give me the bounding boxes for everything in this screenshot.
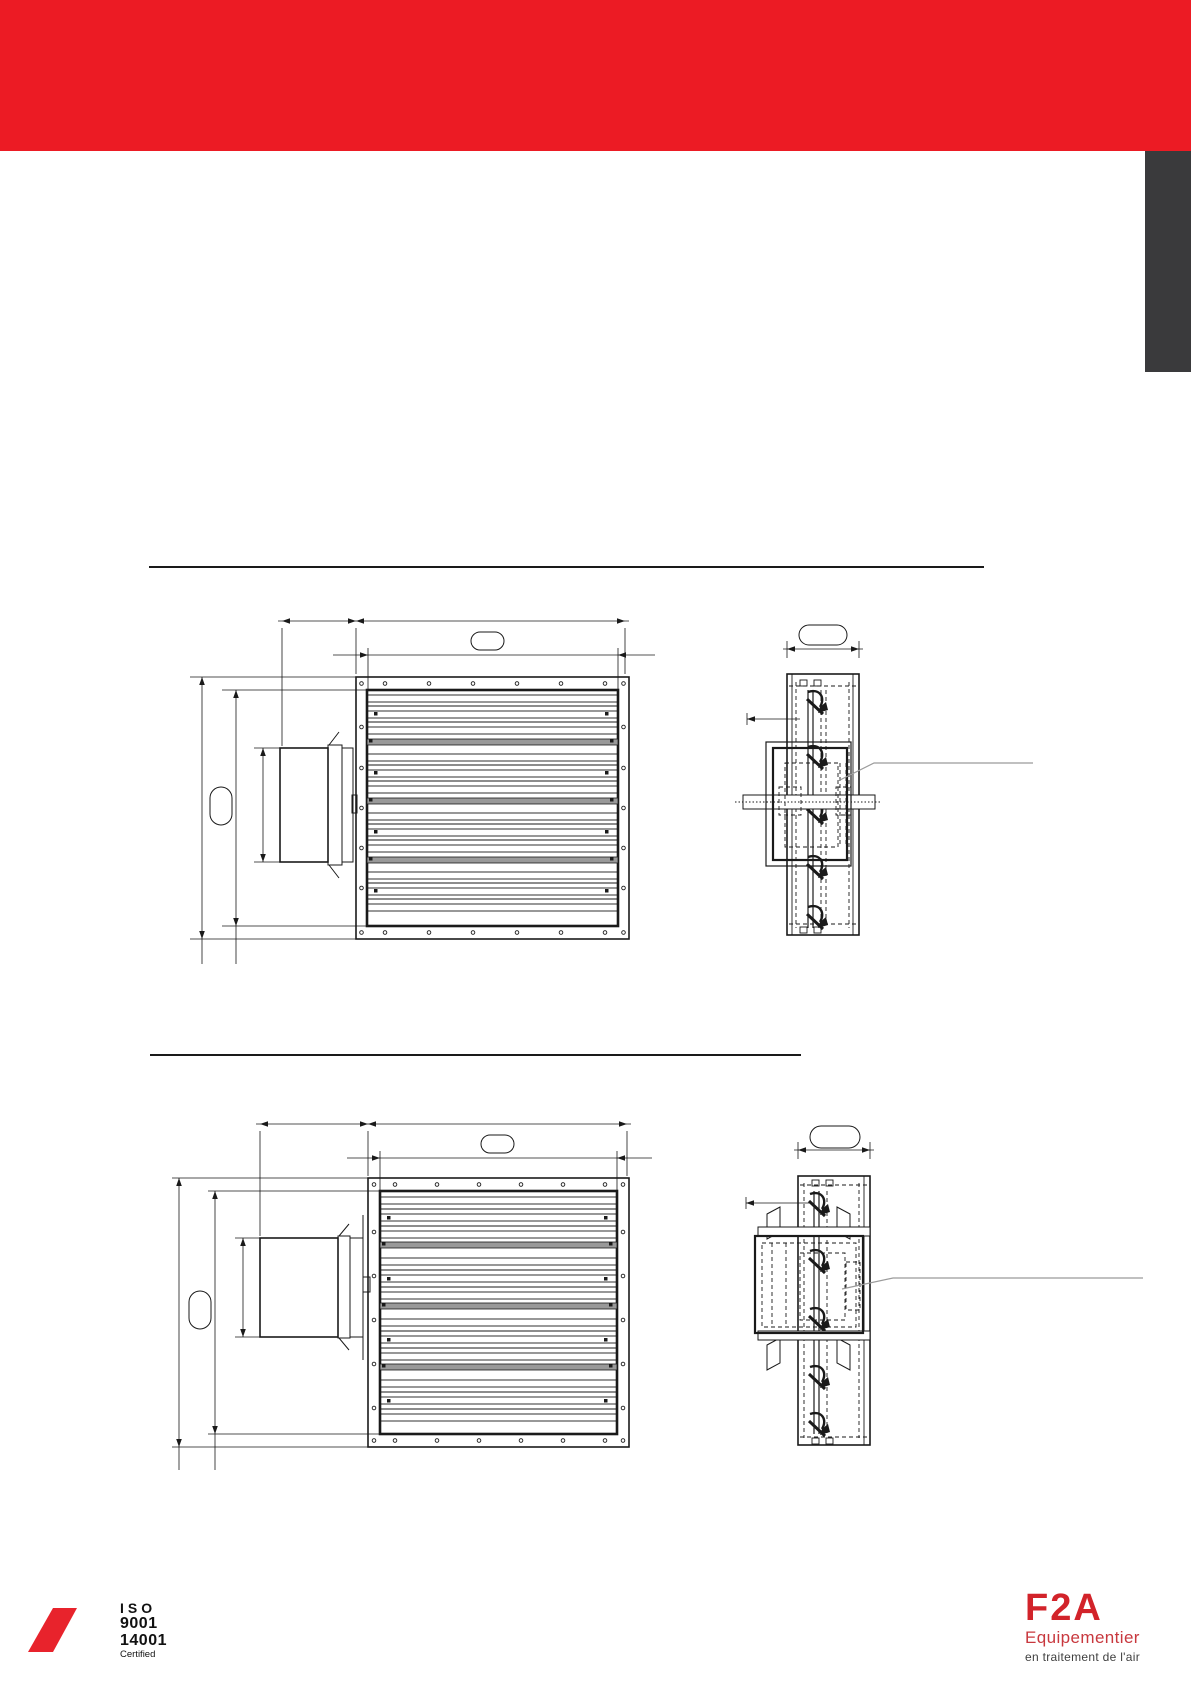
handle-slot	[189, 1291, 211, 1329]
handle-slot	[481, 1135, 514, 1153]
drawing-2	[172, 1121, 1143, 1470]
drawing-2-front-view	[368, 1178, 629, 1447]
drawing-1-front-view	[356, 677, 629, 939]
leader-line	[838, 763, 1033, 781]
handle-slot	[471, 632, 504, 650]
handle-slot	[799, 625, 847, 645]
drawing-1-side-view	[735, 625, 1033, 935]
drawing-1-actuator	[280, 732, 357, 878]
f2a-logo-text: F2A	[1025, 1590, 1140, 1626]
drawing-1-dimensions	[190, 618, 655, 964]
iso-certified-label: Certified	[120, 1650, 167, 1660]
iso-org: ISO	[120, 1601, 167, 1615]
bolt-holes	[372, 1183, 625, 1443]
document-page: ISO 9001 14001 Certified F2A Equipementi…	[0, 0, 1191, 1684]
bolt-holes	[360, 682, 626, 935]
drawing-2-side-view	[746, 1126, 1143, 1445]
handle-slot	[810, 1126, 860, 1148]
f2a-tagline-1: Equipementier	[1025, 1628, 1140, 1648]
drawing-2-actuator	[260, 1215, 370, 1360]
f2a-tagline-2: en traitement de l'air	[1025, 1650, 1140, 1664]
iso-certification-logo: ISO 9001 14001 Certified	[120, 1601, 167, 1660]
mounting-bracket	[767, 1338, 780, 1370]
handle-slot	[210, 787, 232, 825]
slash-logo	[28, 1608, 77, 1652]
f2a-logo: F2A Equipementier en traitement de l'air	[1025, 1590, 1140, 1664]
drawing-1	[190, 618, 1033, 964]
mounting-bracket	[837, 1338, 850, 1370]
leader-line	[842, 1278, 1143, 1289]
technical-drawings	[0, 0, 1191, 1684]
iso-standard-9001: 9001	[120, 1616, 167, 1632]
iso-standard-14001: 14001	[120, 1633, 167, 1649]
drawing-2-dimensions	[172, 1121, 652, 1470]
